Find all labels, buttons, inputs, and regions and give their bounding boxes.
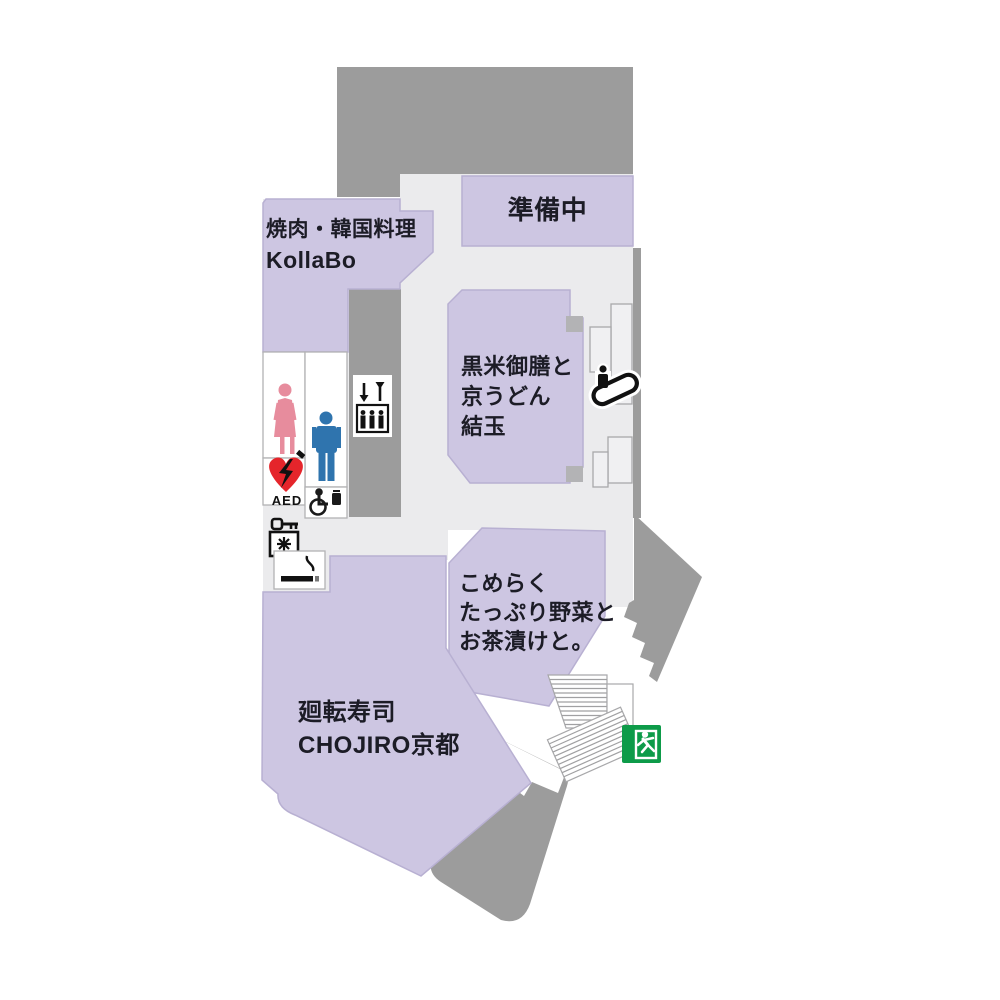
shop-label-yuitama[interactable]: 黒米御膳と 京うどん 結玉 xyxy=(461,352,574,442)
shop-name-line: 京うどん xyxy=(461,382,574,412)
shop-label-preparing[interactable]: 準備中 xyxy=(462,195,633,225)
elevator-icon xyxy=(353,375,392,437)
pillar-block xyxy=(566,466,583,482)
shop-label-kollabo[interactable]: 焼肉・韓国料理 KollaBo xyxy=(266,214,417,276)
building-wedge-southeast xyxy=(624,514,702,682)
shop-name-line: 廻転寿司 xyxy=(298,696,460,729)
shop-name-line: 結玉 xyxy=(461,412,574,442)
shop-name-line: こめらく xyxy=(459,569,617,598)
shop-name-line: たっぷり野菜と xyxy=(459,598,617,627)
shop-name-line: お茶漬けと。 xyxy=(459,627,617,656)
shop-name-line: KollaBo xyxy=(266,245,417,276)
emergency-exit-icon xyxy=(622,725,661,763)
shop-name-line: CHOJIRO京都 xyxy=(298,729,460,762)
floor-map: 焼肉・韓国料理 KollaBo 準備中 黒米御膳と 京うどん 結玉 こめらく た… xyxy=(0,0,1000,1000)
smoking-area-icon xyxy=(274,551,325,589)
aed-label: AED xyxy=(266,493,308,508)
shop-label-komeraku[interactable]: こめらく たっぷり野菜と お茶漬けと。 xyxy=(459,569,617,656)
pillar-block xyxy=(566,316,583,332)
floor-map-canvas xyxy=(0,0,1000,1000)
shop-name-line: 準備中 xyxy=(462,195,633,225)
shop-name-line: 焼肉・韓国料理 xyxy=(266,214,417,245)
shop-label-chojiro[interactable]: 廻転寿司 CHOJIRO京都 xyxy=(298,696,460,762)
shop-name-line: 黒米御膳と xyxy=(461,352,574,382)
